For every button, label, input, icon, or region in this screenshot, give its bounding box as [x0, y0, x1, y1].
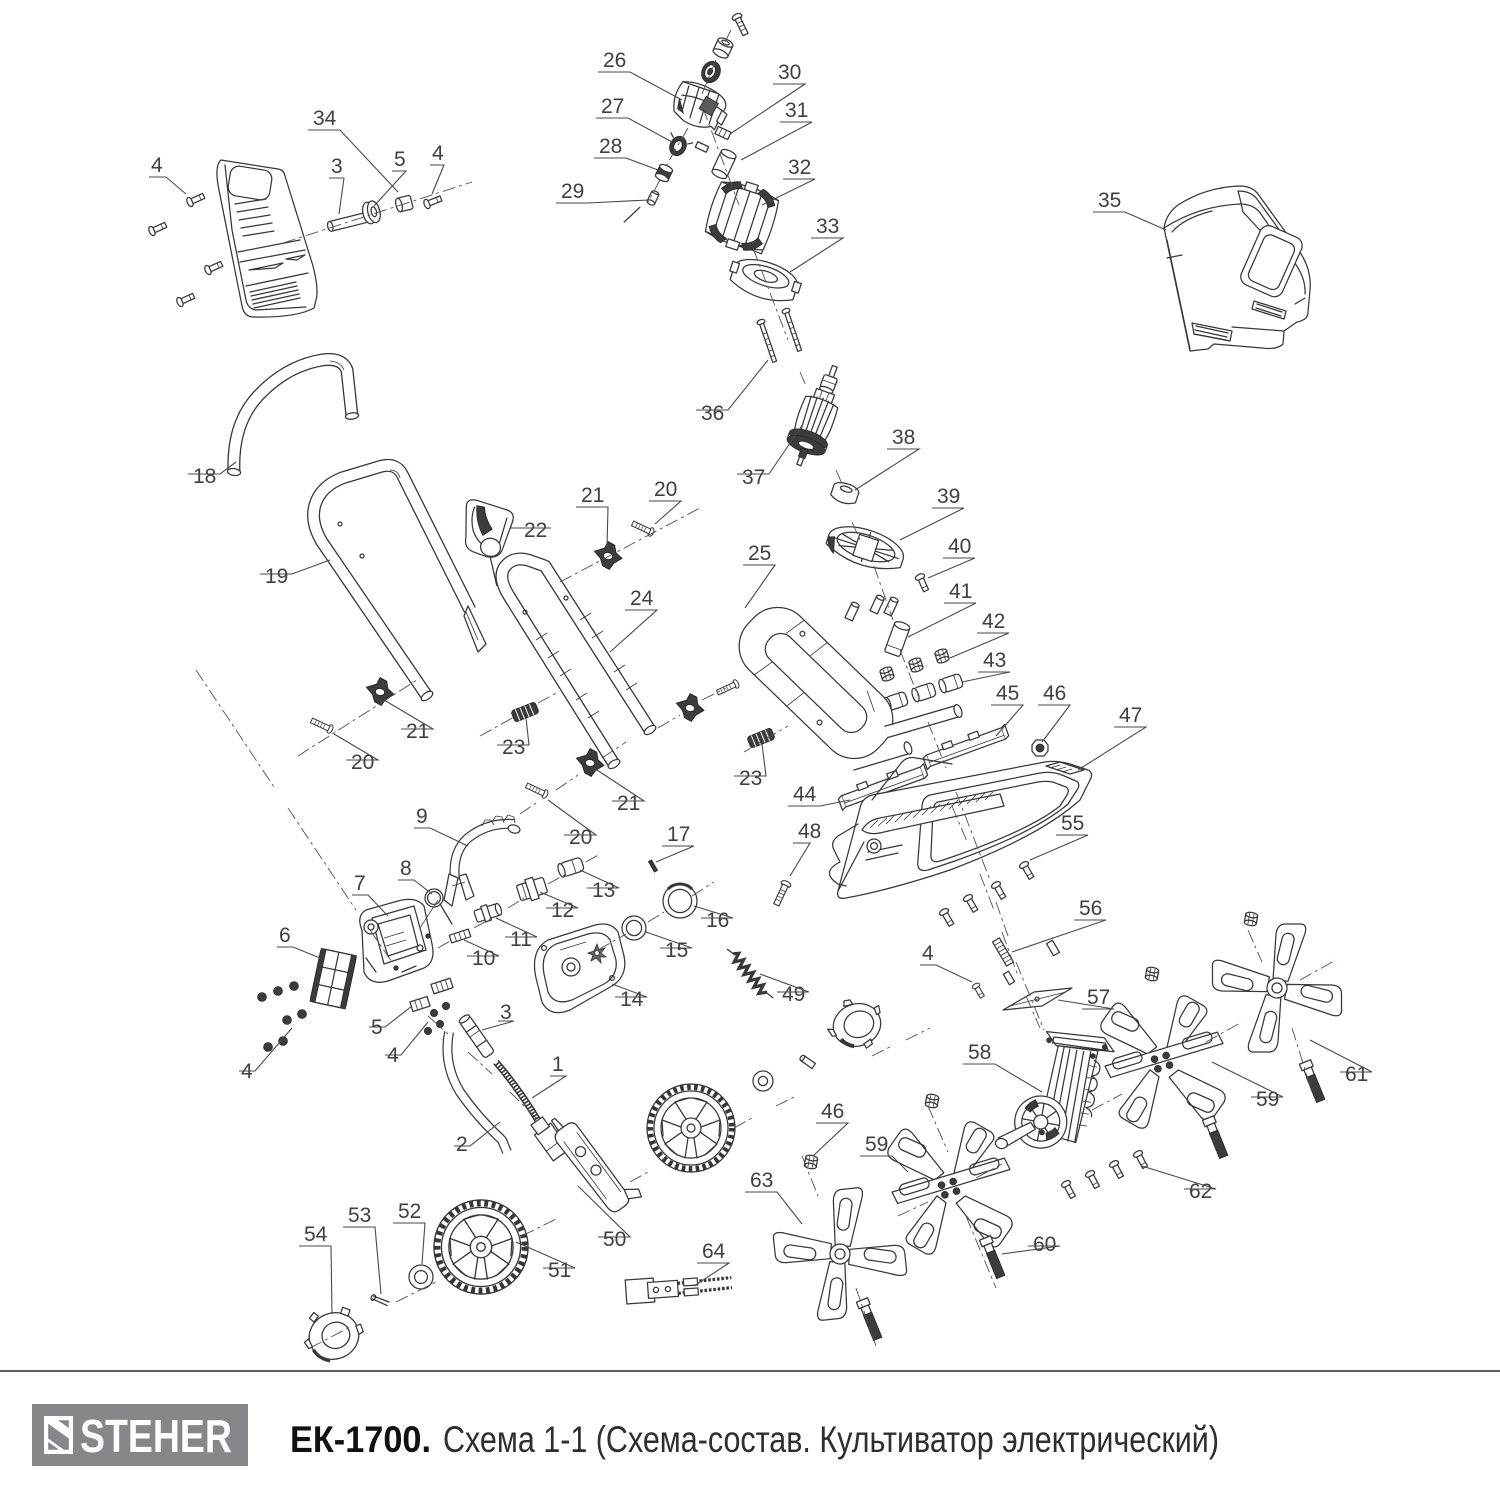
- svg-text:32: 32: [788, 156, 811, 179]
- svg-text:24: 24: [630, 587, 654, 610]
- svg-text:37: 37: [742, 466, 765, 489]
- svg-text:21: 21: [406, 720, 429, 743]
- svg-text:18: 18: [193, 465, 216, 488]
- svg-text:STEHER: STEHER: [80, 1410, 232, 1462]
- svg-text:62: 62: [1189, 1180, 1212, 1203]
- svg-text:44: 44: [793, 783, 817, 806]
- svg-text:53: 53: [348, 1204, 371, 1227]
- svg-text:55: 55: [1061, 812, 1084, 835]
- svg-text:7: 7: [354, 872, 366, 895]
- svg-text:35: 35: [1098, 189, 1121, 212]
- svg-text:45: 45: [996, 682, 1019, 705]
- svg-text:43: 43: [983, 649, 1006, 672]
- svg-text:27: 27: [601, 95, 624, 118]
- svg-text:16: 16: [706, 909, 729, 932]
- svg-text:3: 3: [331, 155, 343, 178]
- svg-text:20: 20: [351, 751, 374, 774]
- svg-text:21: 21: [617, 792, 640, 815]
- svg-text:59: 59: [1256, 1088, 1279, 1111]
- svg-text:59: 59: [865, 1133, 888, 1156]
- svg-text:38: 38: [892, 426, 915, 449]
- svg-text:33: 33: [816, 215, 839, 238]
- svg-text:21: 21: [581, 484, 604, 507]
- svg-text:28: 28: [599, 135, 622, 158]
- svg-text:29: 29: [561, 180, 584, 203]
- svg-text:64: 64: [702, 1240, 726, 1263]
- svg-text:1: 1: [552, 1053, 564, 1076]
- svg-text:42: 42: [982, 610, 1005, 633]
- svg-text:25: 25: [748, 542, 771, 565]
- svg-text:13: 13: [592, 879, 615, 902]
- svg-text:17: 17: [667, 823, 690, 846]
- svg-text:11: 11: [510, 928, 532, 951]
- svg-text:12: 12: [551, 899, 574, 922]
- svg-text:31: 31: [785, 99, 808, 122]
- svg-text:5: 5: [394, 148, 406, 171]
- svg-text:50: 50: [603, 1228, 626, 1251]
- svg-text:4: 4: [151, 154, 163, 177]
- svg-text:23: 23: [502, 736, 525, 759]
- svg-text:60: 60: [1033, 1233, 1056, 1256]
- svg-text:19: 19: [265, 565, 288, 588]
- svg-text:26: 26: [603, 49, 626, 72]
- svg-text:9: 9: [416, 805, 428, 828]
- svg-text:47: 47: [1119, 704, 1142, 727]
- svg-text:22: 22: [524, 519, 547, 542]
- svg-text:61: 61: [1345, 1063, 1368, 1086]
- svg-text:58: 58: [968, 1041, 991, 1064]
- svg-text:36: 36: [701, 402, 724, 425]
- svg-text:20: 20: [654, 478, 677, 501]
- svg-text:4: 4: [922, 942, 934, 965]
- svg-text:46: 46: [1043, 682, 1066, 705]
- svg-text:30: 30: [778, 61, 801, 84]
- svg-text:41: 41: [949, 580, 972, 603]
- svg-text:39: 39: [937, 485, 960, 508]
- svg-text:2: 2: [456, 1133, 468, 1156]
- svg-text:23: 23: [739, 767, 762, 790]
- svg-text:56: 56: [1079, 897, 1102, 920]
- svg-text:51: 51: [548, 1259, 571, 1282]
- svg-text:52: 52: [398, 1200, 421, 1223]
- svg-text:8: 8: [400, 857, 412, 880]
- svg-text:ЕК-1700.: ЕК-1700.: [290, 1419, 431, 1460]
- svg-text:Схема 1-1 (Схема-состав. Культ: Схема 1-1 (Схема-состав. Культиватор эле…: [443, 1419, 1219, 1460]
- svg-text:40: 40: [948, 535, 971, 558]
- svg-text:63: 63: [750, 1169, 773, 1192]
- svg-text:10: 10: [472, 947, 495, 970]
- svg-text:34: 34: [313, 107, 337, 130]
- svg-text:48: 48: [798, 820, 821, 843]
- svg-text:4: 4: [432, 142, 444, 165]
- svg-text:46: 46: [821, 1100, 844, 1123]
- svg-text:54: 54: [304, 1223, 328, 1246]
- svg-text:6: 6: [279, 924, 291, 947]
